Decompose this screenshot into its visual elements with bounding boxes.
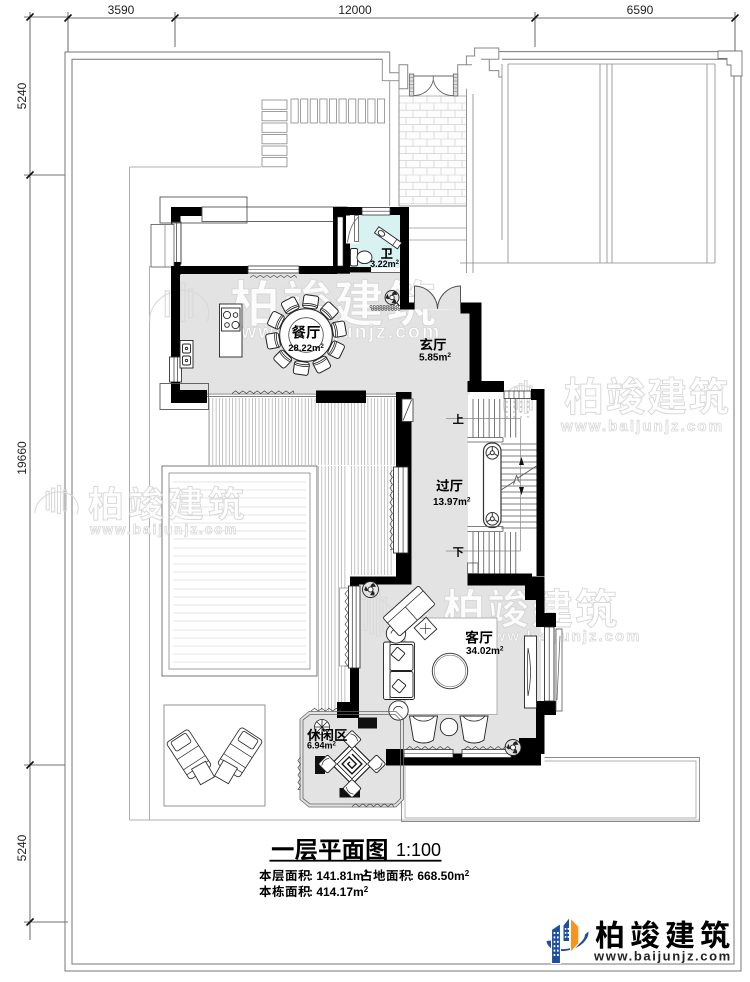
svg-text:19660: 19660	[15, 441, 29, 475]
svg-text:: 414.17m2: : 414.17m2	[309, 885, 369, 899]
svg-text:5240: 5240	[15, 82, 29, 109]
svg-text:12000: 12000	[338, 3, 372, 17]
svg-text:28.22m2: 28.22m2	[288, 343, 324, 354]
svg-text:: 141.81m2: : 141.81m2	[309, 869, 369, 883]
svg-text:www.baijunjz.com: www.baijunjz.com	[89, 522, 239, 537]
svg-text:www.baijunjz.com: www.baijunjz.com	[560, 418, 724, 435]
svg-text:www.baijunjz.com: www.baijunjz.com	[593, 949, 732, 964]
svg-text:1:100: 1:100	[396, 840, 441, 860]
svg-text:: 668.50m2: : 668.50m2	[410, 869, 470, 883]
svg-text:34.02m2: 34.02m2	[466, 646, 504, 658]
svg-text:5240: 5240	[15, 834, 29, 861]
svg-text:6.94m2: 6.94m2	[307, 741, 337, 751]
svg-text:13.97m2: 13.97m2	[433, 497, 471, 509]
svg-text:3.22m2: 3.22m2	[370, 259, 400, 269]
svg-text:3590: 3590	[108, 3, 135, 17]
svg-text:5.85m2: 5.85m2	[419, 352, 451, 364]
svg-text:6590: 6590	[627, 3, 654, 17]
